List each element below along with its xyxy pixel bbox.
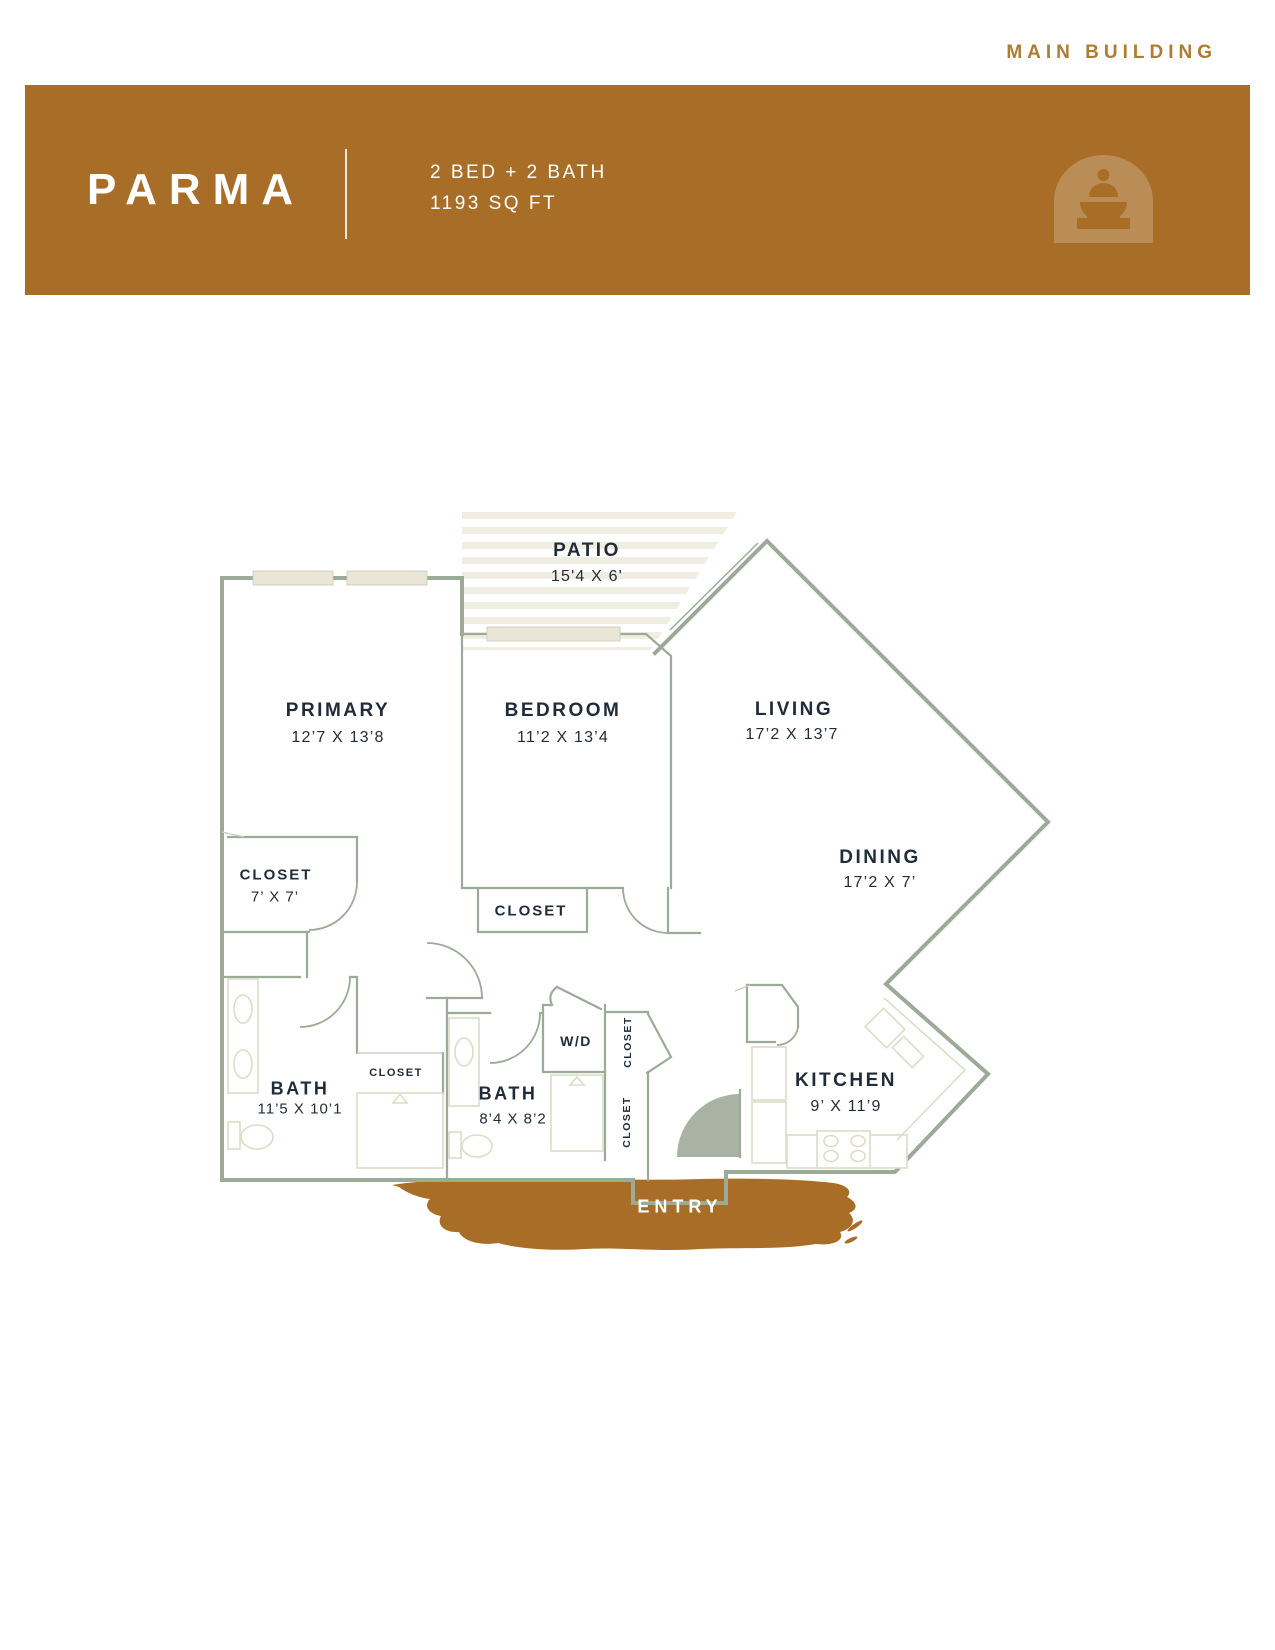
room-label-utility-closet-lower: CLOSET <box>621 1096 633 1148</box>
toilet-tank <box>449 1132 461 1158</box>
room-label-utility-closet-upper: CLOSET <box>622 1016 634 1068</box>
room-label-primary: PRIMARY <box>286 700 390 722</box>
room-dims-living: 17’2 X 13’7 <box>745 726 838 744</box>
sink <box>234 995 252 1023</box>
room-dims-bath-primary: 11’5 X 10’1 <box>258 1101 343 1118</box>
room-dims-kitchen: 9’ X 11’9 <box>810 1098 881 1116</box>
shower <box>551 1075 603 1151</box>
room-label-entry: ENTRY <box>637 1197 722 1218</box>
room-dims-bath2: 8’4 X 8’2 <box>479 1111 546 1128</box>
entry-brush-stroke <box>392 1179 864 1250</box>
toilet-bowl <box>462 1135 492 1157</box>
room-dims-bedroom: 11’2 X 13’4 <box>517 729 609 747</box>
room-label-primary-closet: CLOSET <box>240 867 313 884</box>
room-dims-primary: 12’7 X 13’8 <box>291 729 384 747</box>
room-label-patio: PATIO <box>553 540 621 562</box>
room-dims-patio: 15'4 X 6' <box>551 568 623 586</box>
kitchen-counter <box>752 1102 786 1163</box>
room-label-kitchen: KITCHEN <box>795 1070 897 1092</box>
floor-plan-drawing <box>0 0 1275 1650</box>
shower <box>357 1093 443 1168</box>
room-label-hall-closet: CLOSET <box>369 1067 423 1079</box>
room-label-laundry: W/D <box>560 1033 592 1049</box>
room-label-living: LIVING <box>755 699 833 721</box>
room-label-bath2: BATH <box>479 1084 538 1105</box>
toilet-tank <box>228 1122 240 1149</box>
room-label-bedroom: BEDROOM <box>505 700 622 722</box>
room-label-dining: DINING <box>839 847 921 869</box>
room-label-bedroom-closet: CLOSET <box>495 903 568 920</box>
floor-plan: PATIO 15'4 X 6' PRIMARY 12’7 X 13’8 BEDR… <box>0 0 1275 1650</box>
kitchen-sink <box>892 1036 923 1067</box>
sink <box>234 1050 252 1078</box>
kitchen-counter <box>752 1047 786 1100</box>
room-dims-primary-closet: 7’ X 7’ <box>251 889 299 906</box>
toilet-bowl <box>241 1125 273 1149</box>
entry-door-swing <box>677 1094 740 1157</box>
sink <box>455 1038 473 1066</box>
floor-plan-page: MAIN BUILDING PARMA 2 BED + 2 BATH 1193 … <box>0 0 1275 1650</box>
room-label-bath-primary: BATH <box>271 1079 330 1100</box>
room-dims-dining: 17’2 X 7’ <box>843 874 916 892</box>
